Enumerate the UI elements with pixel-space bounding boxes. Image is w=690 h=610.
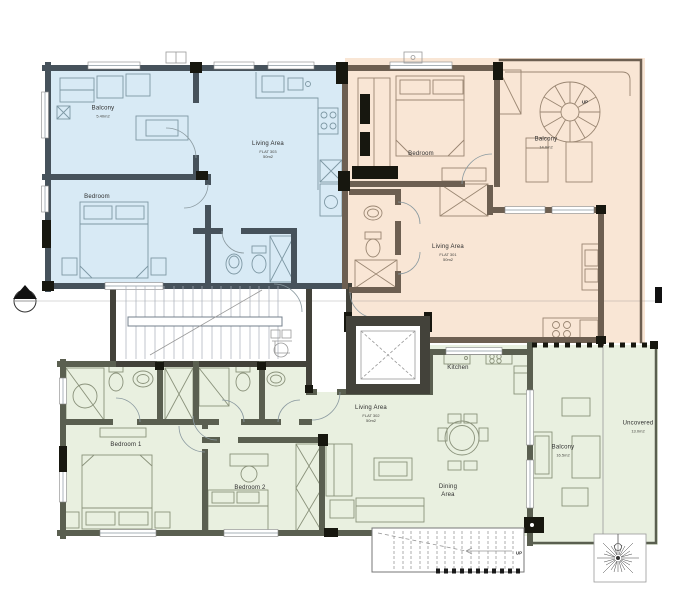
sun-symbol <box>594 534 646 582</box>
exterior-stair <box>372 528 524 572</box>
section-tick <box>655 287 662 303</box>
floor-plan-canvas <box>0 0 690 610</box>
floor-plan-drawing: Balcony 5.40m2 Living Area FLAT 303 50m2… <box>0 0 690 610</box>
elevator <box>346 316 430 394</box>
